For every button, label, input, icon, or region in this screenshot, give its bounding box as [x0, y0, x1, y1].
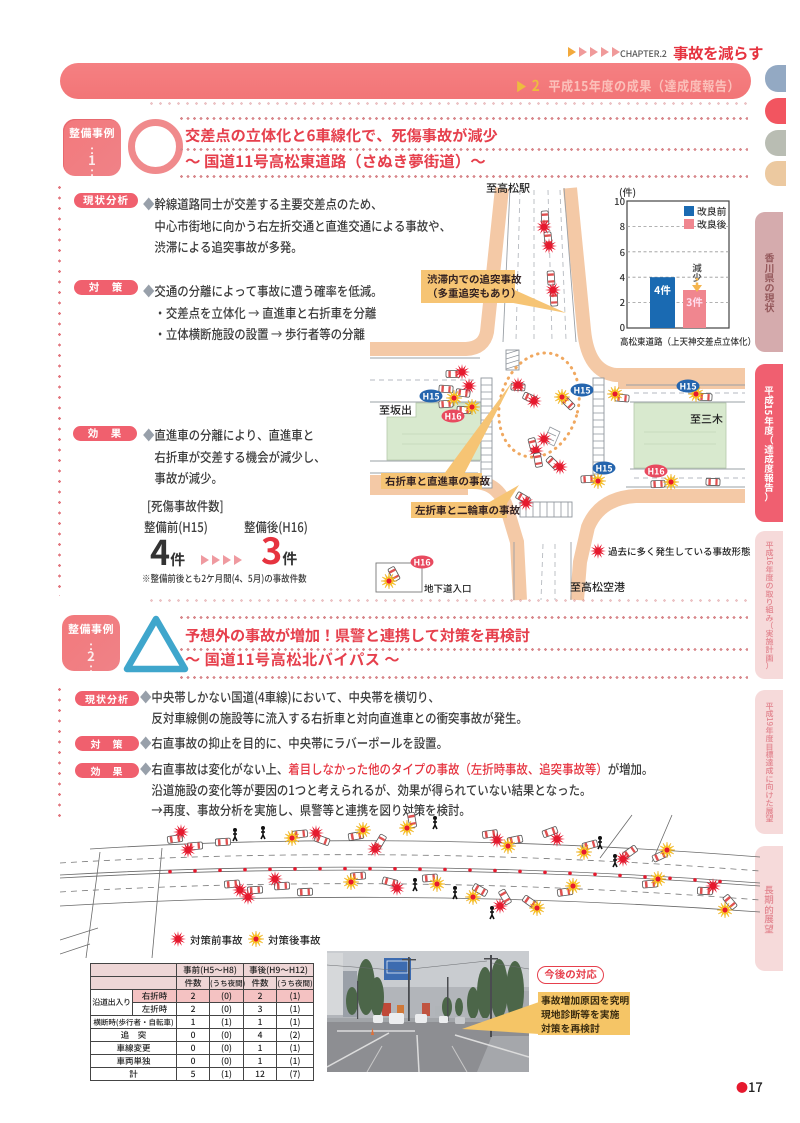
svg-text:H16: H16 [647, 465, 664, 478]
svg-text:過去に多く発生している事故形態: 過去に多く発生している事故形態 [608, 544, 751, 558]
svg-text:H15: H15 [679, 380, 696, 393]
svg-text:H15: H15 [422, 390, 439, 403]
svg-text:H16: H16 [413, 556, 430, 569]
svg-text:左折車と二輪車の事故: 左折車と二輪車の事故 [415, 503, 520, 518]
svg-text:右折車と直進車の事故: 右折車と直進車の事故 [385, 474, 490, 489]
svg-text:対策後事故: 対策後事故 [268, 933, 321, 948]
svg-text:H15: H15 [573, 384, 590, 397]
svg-text:（多重追突もあり）: （多重追突もあり） [427, 286, 522, 301]
svg-text:H15: H15 [595, 462, 612, 475]
svg-text:H16: H16 [444, 410, 461, 423]
svg-text:対策前事故: 対策前事故 [190, 933, 243, 948]
svg-text:渋滞内での追突事故: 渋滞内での追突事故 [427, 272, 522, 287]
